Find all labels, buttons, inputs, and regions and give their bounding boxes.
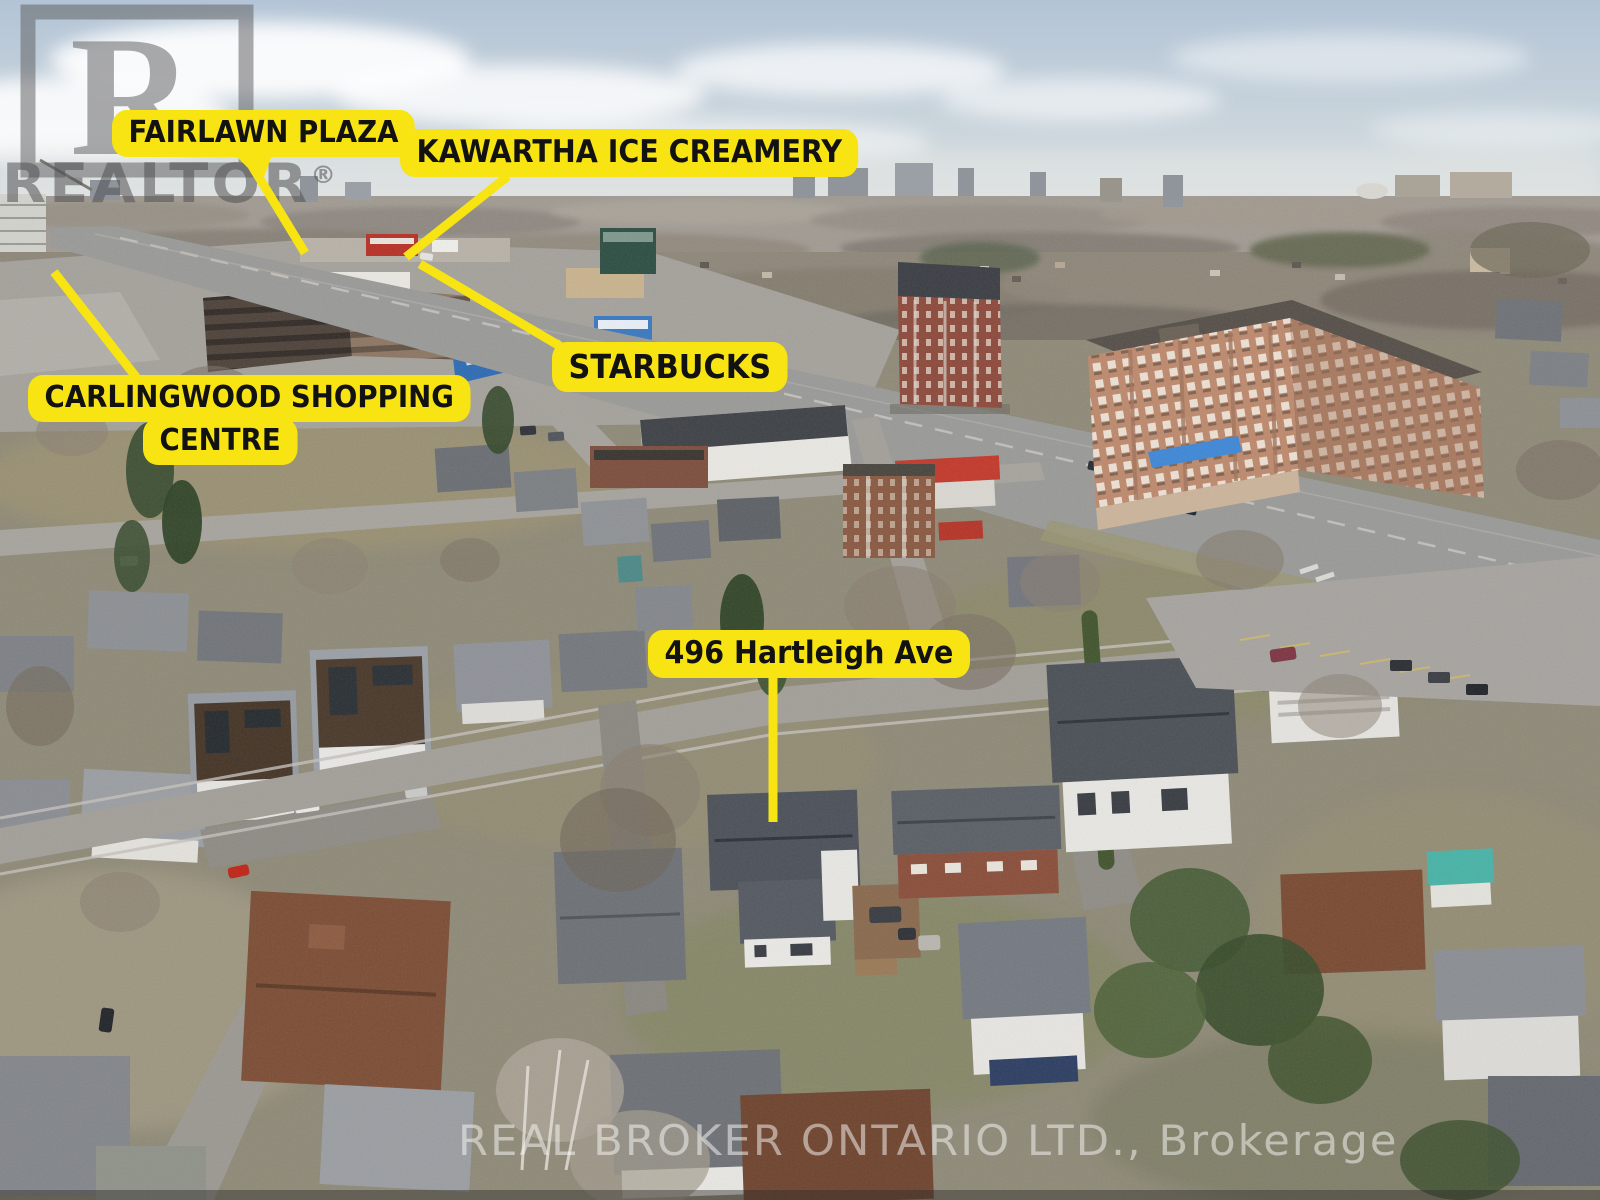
callout-kawartha-ice-creamery: KAWARTHA ICE CREAMERY xyxy=(400,129,859,177)
aerial-photo-illustration xyxy=(0,0,1600,1200)
callout-carlingwood-line1: CARLINGWOOD SHOPPING xyxy=(28,375,470,422)
callout-fairlawn-plaza: FAIRLAWN PLAZA xyxy=(112,110,415,157)
callout-carlingwood-line2: CENTRE xyxy=(143,418,297,465)
callout-starbucks: STARBUCKS xyxy=(552,342,788,392)
callout-subject-address: 496 Hartleigh Ave xyxy=(648,630,970,678)
listing-aerial-photo: R REALTOR® REAL BROKER ONTARIO LTD., Bro… xyxy=(0,0,1600,1200)
